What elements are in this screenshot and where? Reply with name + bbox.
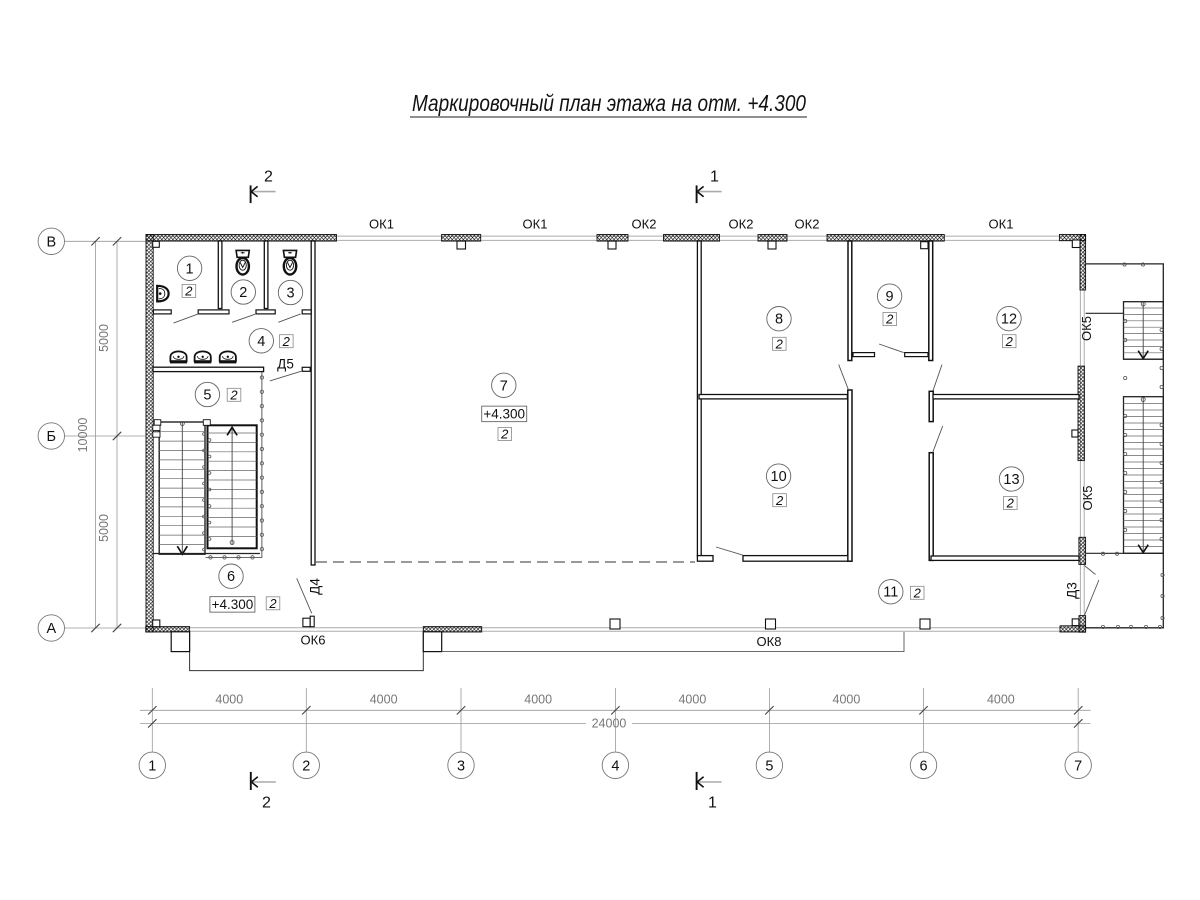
svg-text:5: 5 bbox=[203, 388, 211, 404]
svg-text:2: 2 bbox=[885, 312, 894, 327]
svg-text:6: 6 bbox=[227, 569, 235, 585]
svg-text:ОК2: ОК2 bbox=[729, 217, 754, 232]
svg-text:2: 2 bbox=[229, 388, 238, 403]
svg-text:4000: 4000 bbox=[987, 693, 1015, 707]
svg-text:5000: 5000 bbox=[97, 514, 111, 542]
svg-text:1: 1 bbox=[710, 169, 719, 186]
svg-text:1: 1 bbox=[148, 758, 156, 774]
svg-text:7: 7 bbox=[1074, 758, 1082, 774]
svg-text:2: 2 bbox=[1006, 496, 1015, 511]
svg-text:4: 4 bbox=[611, 758, 619, 774]
svg-text:Д4: Д4 bbox=[308, 578, 323, 595]
svg-text:5000: 5000 bbox=[97, 324, 111, 352]
svg-text:12: 12 bbox=[1001, 312, 1017, 328]
svg-text:13: 13 bbox=[1003, 472, 1019, 488]
svg-text:2: 2 bbox=[282, 334, 291, 349]
svg-text:2: 2 bbox=[184, 284, 193, 299]
svg-text:2: 2 bbox=[1005, 334, 1014, 349]
svg-text:9: 9 bbox=[886, 289, 894, 305]
svg-text:ОК1: ОК1 bbox=[523, 217, 548, 232]
svg-text:8: 8 bbox=[775, 312, 783, 328]
svg-text:2: 2 bbox=[775, 493, 784, 508]
svg-text:4000: 4000 bbox=[678, 693, 706, 707]
svg-text:Маркировочный план этажа на от: Маркировочный план этажа на отм. +4.300 bbox=[412, 90, 806, 116]
svg-text:6: 6 bbox=[919, 758, 927, 774]
svg-text:4000: 4000 bbox=[833, 693, 861, 707]
svg-text:7: 7 bbox=[500, 378, 508, 394]
svg-text:2: 2 bbox=[775, 337, 784, 352]
svg-text:+4.300: +4.300 bbox=[212, 597, 254, 612]
svg-text:2: 2 bbox=[239, 285, 247, 301]
svg-text:2: 2 bbox=[262, 795, 271, 812]
svg-text:24000: 24000 bbox=[592, 717, 627, 731]
svg-text:4000: 4000 bbox=[524, 693, 552, 707]
svg-text:2: 2 bbox=[264, 169, 273, 186]
svg-text:1: 1 bbox=[708, 795, 717, 812]
svg-text:2: 2 bbox=[913, 586, 922, 601]
svg-text:2: 2 bbox=[268, 596, 277, 611]
svg-text:ОК1: ОК1 bbox=[989, 217, 1014, 232]
svg-text:3: 3 bbox=[457, 758, 465, 774]
svg-text:ОК5: ОК5 bbox=[1080, 486, 1095, 511]
svg-text:10: 10 bbox=[771, 469, 787, 485]
svg-text:5: 5 bbox=[765, 758, 773, 774]
svg-text:+4.300: +4.300 bbox=[483, 407, 525, 422]
svg-text:ОК8: ОК8 bbox=[757, 634, 782, 649]
svg-text:3: 3 bbox=[286, 286, 294, 302]
svg-text:4000: 4000 bbox=[370, 693, 398, 707]
svg-text:А: А bbox=[46, 621, 56, 637]
svg-text:ОК2: ОК2 bbox=[795, 217, 820, 232]
svg-text:4000: 4000 bbox=[215, 693, 243, 707]
svg-text:ОК5: ОК5 bbox=[1079, 316, 1094, 341]
svg-text:ОК2: ОК2 bbox=[632, 217, 657, 232]
svg-text:2: 2 bbox=[302, 758, 310, 774]
svg-text:ОК1: ОК1 bbox=[369, 217, 394, 232]
svg-text:4: 4 bbox=[257, 334, 265, 350]
svg-text:1: 1 bbox=[186, 261, 194, 277]
svg-text:2: 2 bbox=[500, 427, 509, 442]
svg-text:ОК6: ОК6 bbox=[301, 633, 326, 648]
svg-text:В: В bbox=[46, 234, 56, 250]
svg-text:11: 11 bbox=[883, 585, 898, 601]
svg-text:Д3: Д3 bbox=[1065, 582, 1080, 599]
svg-text:10000: 10000 bbox=[76, 418, 90, 453]
svg-text:Д5: Д5 bbox=[277, 357, 294, 372]
svg-text:Б: Б bbox=[47, 429, 57, 445]
